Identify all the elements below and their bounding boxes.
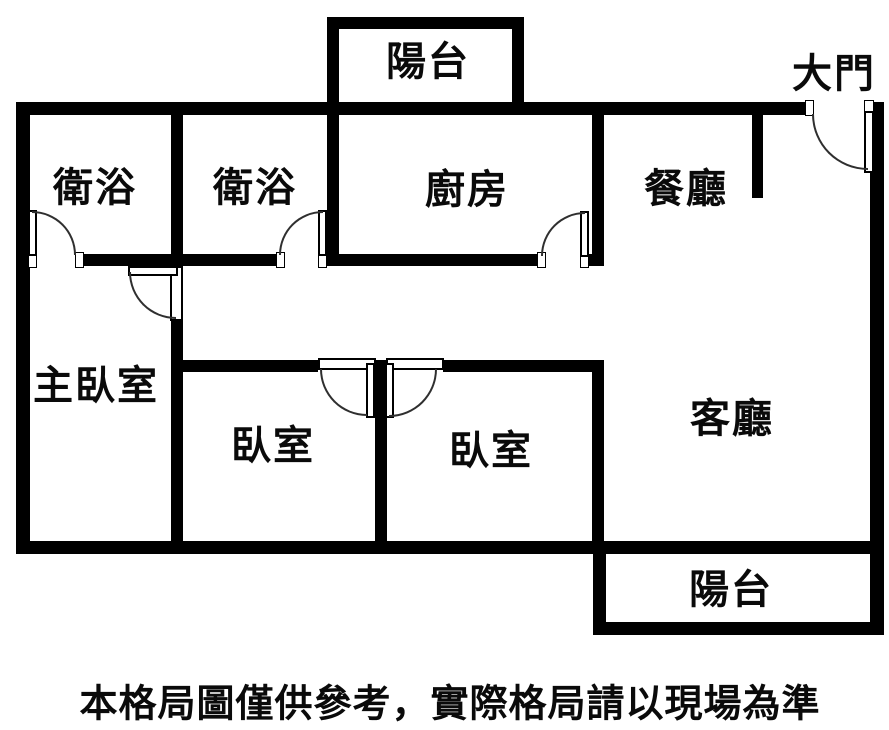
wall-balcony-bottom-south [593,622,884,635]
door-swing-arc [541,212,585,256]
room-label-bedroom-2: 臥室 [449,431,533,471]
wall-outer-right [870,102,884,635]
wall-outer-bottom [16,541,884,554]
wall-hallway-south-c [443,360,604,372]
wall-bathroom-divider [171,115,183,254]
wall-outer-top [16,102,812,115]
wall-balcony-top-north [327,17,524,29]
door-swing-arc [32,211,76,255]
door-swing-arc [812,114,868,170]
door-jamb [75,252,84,268]
wall-balcony-top-east [512,17,524,103]
wall-kitchen-west [327,102,339,266]
door-leaf [366,363,375,418]
disclaimer-text: 本格局圖僅供參考，實際格局請以現場為準 [79,673,820,728]
wall-hallway-south-a [171,360,318,372]
room-label-balcony-top: 陽台 [386,42,470,82]
wall-balcony-top-west [327,17,339,103]
door-swing-arc [279,211,323,255]
room-label-kitchen: 廚房 [425,170,509,210]
room-label-living-room: 客廳 [690,399,774,439]
room-label-dining-room: 餐廳 [644,169,728,209]
wall-hallway-north-c [589,254,604,266]
room-label-bathroom-1: 衛浴 [53,168,137,208]
wall-entry-partition [752,115,763,198]
room-label-master-bedroom: 主臥室 [33,366,159,406]
wall-bedroom2-east [592,360,604,541]
wall-kitchen-east [592,115,604,266]
door-swing-arc [320,369,367,416]
room-label-bedroom-1: 臥室 [231,426,315,466]
wall-outer-left [16,102,30,554]
door-swing-arc [129,272,176,319]
door-swing-arc [389,369,437,417]
floorplan-canvas: 陽台 大門 衛浴 衛浴 廚房 餐廳 主臥室 臥室 臥室 客廳 陽台 本格局圖僅供… [0,0,889,730]
wall-hallway-north-a [84,254,277,266]
room-label-entrance: 大門 [792,54,876,94]
wall-master-divider-lower [171,319,183,541]
room-label-bathroom-2: 衛浴 [213,168,297,208]
wall-hallway-north-b [327,254,538,266]
room-label-balcony-bottom: 陽台 [689,570,773,610]
